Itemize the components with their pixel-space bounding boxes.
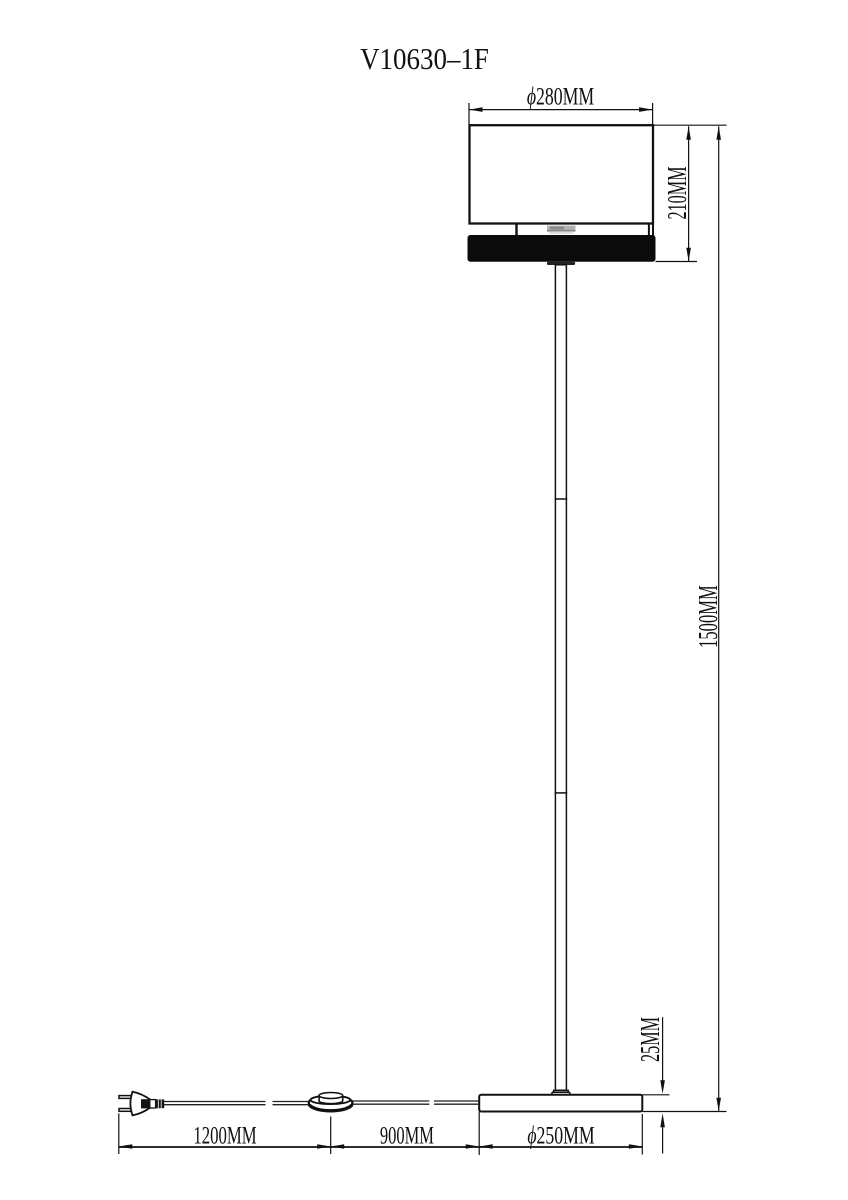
svg-text:ϕ280MM: ϕ280MM [527, 82, 594, 110]
svg-text:V10630–1F: V10630–1F [360, 42, 489, 76]
svg-text:1200MM: 1200MM [193, 1121, 256, 1149]
svg-text:25MM: 25MM [635, 1017, 665, 1062]
svg-text:210MM: 210MM [662, 166, 692, 219]
svg-text:1500MM: 1500MM [693, 585, 723, 648]
svg-text:ϕ250MM: ϕ250MM [527, 1122, 594, 1150]
svg-text:900MM: 900MM [380, 1121, 434, 1149]
